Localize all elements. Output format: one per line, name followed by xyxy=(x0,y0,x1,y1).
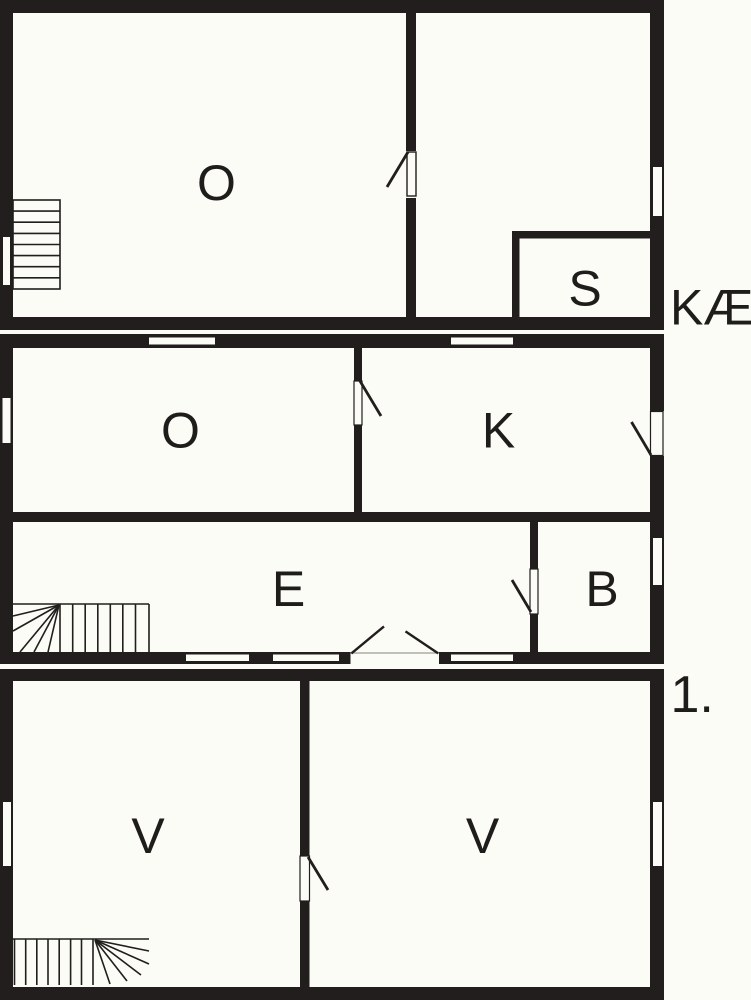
svg-text:O: O xyxy=(197,155,236,211)
svg-text:E: E xyxy=(272,561,305,617)
svg-text:O: O xyxy=(161,402,200,458)
svg-text:KÆLDER: KÆLDER xyxy=(670,280,751,336)
svg-text:V: V xyxy=(131,808,165,864)
svg-text:K: K xyxy=(482,403,515,459)
svg-text:V: V xyxy=(466,808,500,864)
svg-text:B: B xyxy=(585,561,618,617)
svg-text:1.: 1. xyxy=(671,666,714,724)
svg-text:S: S xyxy=(568,261,601,317)
